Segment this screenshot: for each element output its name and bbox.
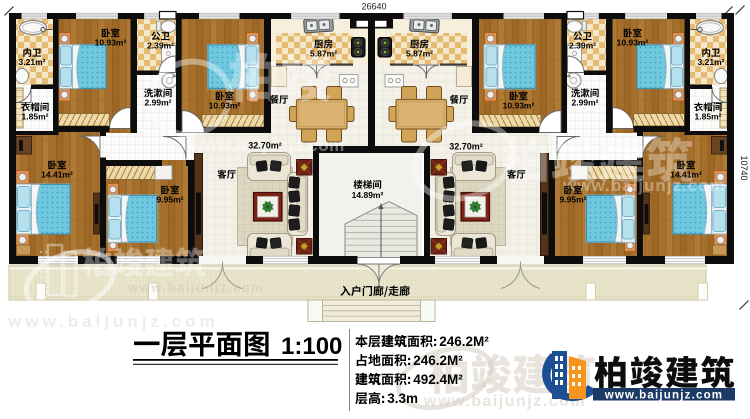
svg-text:26640: 26640 xyxy=(361,2,386,12)
svg-text:9.95m²: 9.95m² xyxy=(157,195,184,205)
svg-text:246.2M²: 246.2M² xyxy=(439,334,489,349)
svg-text:3.21m²: 3.21m² xyxy=(698,57,725,67)
svg-text:9.95m²: 9.95m² xyxy=(560,195,587,205)
svg-text:14.41m²: 14.41m² xyxy=(41,170,73,180)
svg-text:2.99m²: 2.99m² xyxy=(572,98,599,108)
svg-text:1:100: 1:100 xyxy=(281,333,342,360)
svg-text:2.99m²: 2.99m² xyxy=(145,98,172,108)
svg-text:www.baijunjz.com: www.baijunjz.com xyxy=(604,389,723,401)
svg-text:14.41m²: 14.41m² xyxy=(670,170,702,180)
svg-text:10.93m²: 10.93m² xyxy=(209,101,241,111)
svg-text:10.93m²: 10.93m² xyxy=(617,38,649,48)
svg-text:246.2M²: 246.2M² xyxy=(413,353,463,368)
svg-text:492.4M²: 492.4M² xyxy=(413,372,463,387)
svg-text:32.70m²: 32.70m² xyxy=(449,142,483,152)
svg-text:www.baijunjz.com: www.baijunjz.com xyxy=(127,280,264,295)
svg-text:1.85m²: 1.85m² xyxy=(695,112,722,122)
svg-text:14.89m²: 14.89m² xyxy=(352,190,384,200)
svg-text:3.3m: 3.3m xyxy=(387,391,418,406)
svg-text:5.87m²: 5.87m² xyxy=(406,49,433,59)
svg-text:5.87m²: 5.87m² xyxy=(310,49,337,59)
svg-text:2.39m²: 2.39m² xyxy=(569,41,596,51)
svg-text:www.baijunjz.com: www.baijunjz.com xyxy=(7,312,219,331)
svg-text:3.21m²: 3.21m² xyxy=(19,57,46,67)
svg-text:32.70m²: 32.70m² xyxy=(248,141,282,151)
svg-text:10.93m²: 10.93m² xyxy=(503,101,535,111)
svg-text:10740: 10740 xyxy=(739,155,749,180)
svg-text:2.39m²: 2.39m² xyxy=(147,41,174,51)
svg-text:10.93m²: 10.93m² xyxy=(95,38,127,48)
svg-text:1.85m²: 1.85m² xyxy=(22,112,49,122)
